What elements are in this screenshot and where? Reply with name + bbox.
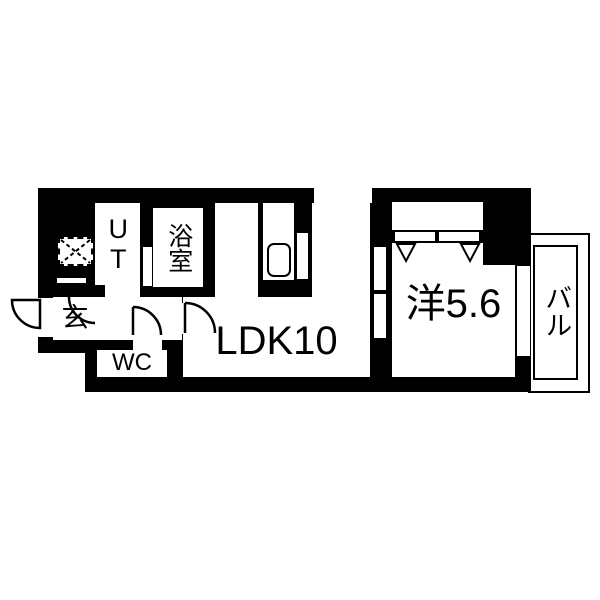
entrance-label: 玄 [53, 297, 97, 340]
floor-plan: UT 浴室 玄 WC LDK10 洋5.6 バル [0, 0, 600, 600]
ut-label: UT [95, 203, 140, 285]
closet-triangle-right [461, 244, 479, 261]
balcony-label: バル [533, 258, 578, 364]
ldk-label: LDK10 [183, 318, 370, 364]
bath-label: 浴室 [153, 208, 203, 287]
entrance-door-arc [12, 300, 40, 328]
wc-door-arc [133, 307, 161, 335]
bedroom-label: 洋5.6 [392, 281, 515, 327]
wc-label: WC [97, 350, 167, 377]
closet-triangle-left [397, 244, 415, 261]
